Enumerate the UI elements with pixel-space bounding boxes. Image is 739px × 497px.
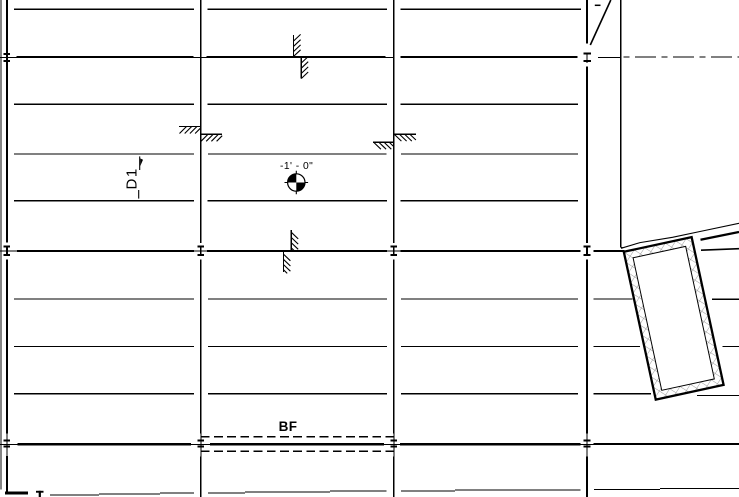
svg-text:BF: BF (279, 419, 298, 434)
svg-text:-1' - 0": -1' - 0" (280, 161, 313, 172)
svg-text:D1: D1 (123, 167, 140, 189)
